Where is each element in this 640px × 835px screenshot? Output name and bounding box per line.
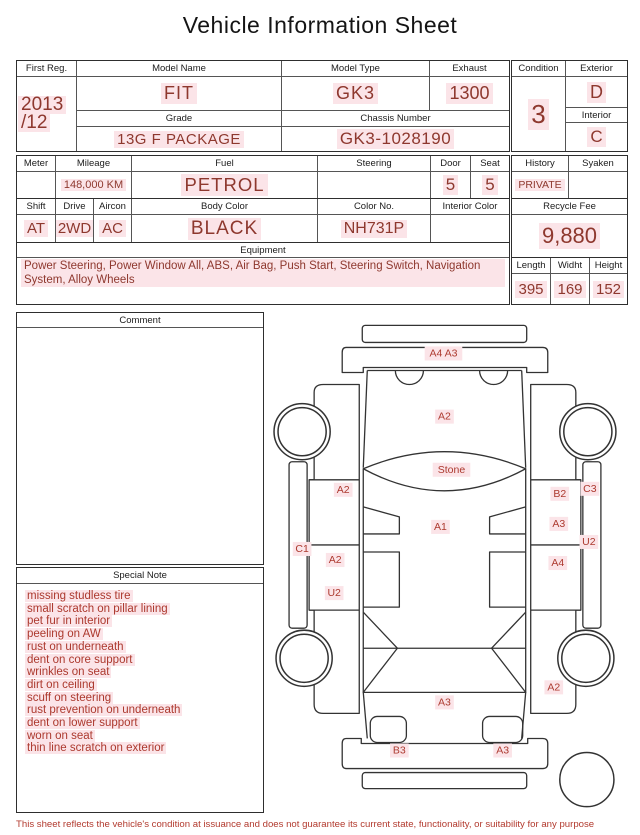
body-color-label: Body Color bbox=[132, 199, 318, 215]
diagram-damage-label: A2 bbox=[329, 554, 342, 566]
special-note-item: dent on core support bbox=[25, 654, 255, 667]
aircon-value: AC bbox=[99, 220, 126, 237]
diagram-damage-label: C3 bbox=[583, 483, 597, 495]
condition-grade-cell: 3 bbox=[512, 77, 566, 151]
diagram-damage-label: A3 bbox=[552, 518, 565, 530]
door-cell: 5 bbox=[431, 172, 471, 198]
special-note-item: small scratch on pillar lining bbox=[25, 603, 255, 616]
shift-label: Shift bbox=[17, 199, 56, 215]
page-title: Vehicle Information Sheet bbox=[0, 12, 640, 39]
model-type-cell: GK3 bbox=[282, 77, 430, 111]
recycle-fee-cell: 9,880 bbox=[512, 215, 627, 257]
diagram-damage-label: B3 bbox=[393, 745, 406, 757]
color-no-label: Color No. bbox=[318, 199, 431, 215]
condition-label: Condition bbox=[512, 61, 566, 77]
grade-value: 13G F PACKAGE bbox=[114, 131, 244, 148]
first-reg-label: First Reg. bbox=[17, 61, 77, 77]
meter-label: Meter bbox=[17, 156, 56, 172]
width-cell: 169 bbox=[551, 274, 590, 304]
equipment-value: Power Steering, Power Window All, ABS, A… bbox=[21, 259, 505, 287]
width-label: Widht bbox=[551, 258, 590, 274]
syaken-cell bbox=[569, 172, 627, 198]
color-no-value: NH731P bbox=[341, 220, 407, 238]
registration-table: First Reg. Model Name Model Type Exhaust… bbox=[16, 60, 510, 152]
exterior-grade-cell: D bbox=[566, 77, 627, 108]
body-color-value: BLACK bbox=[188, 218, 261, 240]
exterior-label: Exterior bbox=[566, 61, 627, 77]
length-value: 395 bbox=[515, 281, 546, 298]
height-cell: 152 bbox=[590, 274, 627, 304]
condition-grade-value: 3 bbox=[528, 99, 548, 130]
exhaust-value: 1300 bbox=[446, 83, 492, 104]
special-note-item: wrinkles on seat bbox=[25, 666, 255, 679]
diagram-damage-label: Stone bbox=[438, 464, 466, 476]
exhaust-label: Exhaust bbox=[430, 61, 509, 77]
condition-table: Condition Exterior 3 D Interior C bbox=[511, 60, 628, 152]
drive-value: 2WD bbox=[56, 220, 94, 237]
grade-label: Grade bbox=[77, 111, 282, 127]
spare-tire-icon bbox=[560, 753, 614, 807]
history-cell: PRIVATE bbox=[512, 172, 569, 198]
height-label: Height bbox=[590, 258, 627, 274]
mileage-label: Mileage bbox=[56, 156, 132, 172]
drive-label: Drive bbox=[56, 199, 94, 215]
seat-cell: 5 bbox=[471, 172, 509, 198]
car-diagram: A4 A3A2StoneA2B2C3A1A3C1U2A2A4U2A2A3B3A3 bbox=[264, 304, 640, 816]
door-label: Door bbox=[431, 156, 471, 172]
interior-label: Interior bbox=[566, 108, 627, 123]
interior-grade-cell: C bbox=[566, 123, 627, 151]
special-note-item: rust prevention on underneath bbox=[25, 704, 255, 717]
seat-value: 5 bbox=[482, 175, 497, 195]
color-no-cell: NH731P bbox=[318, 215, 431, 242]
model-name-value: FIT bbox=[161, 83, 197, 104]
diagram-damage-label: U2 bbox=[582, 536, 596, 548]
comment-body bbox=[17, 328, 263, 564]
spec-table-2: Shift Drive Aircon Body Color Color No. … bbox=[16, 199, 510, 243]
model-name-cell: FIT bbox=[77, 77, 282, 111]
recycle-fee-table: Recycle Fee 9,880 bbox=[511, 199, 628, 258]
length-label: Length bbox=[512, 258, 551, 274]
footer-disclaimer: This sheet reflects the vehicle's condit… bbox=[16, 819, 628, 830]
special-note-item: rust on underneath bbox=[25, 641, 255, 654]
chassis-number-label: Chassis Number bbox=[282, 111, 509, 127]
shift-value: AT bbox=[24, 220, 48, 237]
diagram-damage-label: A3 bbox=[438, 696, 451, 708]
equipment-label: Equipment bbox=[17, 243, 509, 258]
door-value: 5 bbox=[443, 175, 458, 195]
model-type-label: Model Type bbox=[282, 61, 430, 77]
body-color-cell: BLACK bbox=[132, 215, 318, 242]
recycle-fee-label: Recycle Fee bbox=[512, 199, 627, 215]
recycle-fee-value: 9,880 bbox=[539, 223, 600, 249]
diagram-damage-label: A3 bbox=[496, 745, 509, 757]
model-name-label: Model Name bbox=[77, 61, 282, 77]
special-note-item: dent on lower support bbox=[25, 717, 255, 730]
special-note-label: Special Note bbox=[17, 568, 263, 584]
diagram-damage-label: C1 bbox=[295, 543, 309, 555]
first-reg-cell: 2013 /12 bbox=[17, 77, 77, 151]
mileage-value: 148,000 KM bbox=[61, 179, 126, 191]
spec-table-1: Meter Mileage Fuel Steering Door Seat 14… bbox=[16, 155, 510, 199]
special-note-box: Special Note missing studless tire small… bbox=[16, 567, 264, 813]
first-reg-month: /12 bbox=[18, 114, 50, 132]
length-cell: 395 bbox=[512, 274, 551, 304]
fuel-label: Fuel bbox=[132, 156, 318, 172]
comment-box: Comment bbox=[16, 312, 264, 565]
shift-cell: AT bbox=[17, 215, 56, 242]
grade-cell: 13G F PACKAGE bbox=[77, 127, 282, 151]
width-value: 169 bbox=[554, 281, 585, 298]
special-note-item: scuff on steering bbox=[25, 692, 255, 705]
mileage-cell: 148,000 KM bbox=[56, 172, 132, 198]
special-note-item: thin line scratch on exterior bbox=[25, 742, 255, 755]
syaken-label: Syaken bbox=[569, 156, 627, 172]
aircon-cell: AC bbox=[94, 215, 132, 242]
special-note-item: peeling on AW bbox=[25, 628, 255, 641]
model-type-value: GK3 bbox=[333, 83, 378, 104]
special-note-item: dirt on ceiling bbox=[25, 679, 255, 692]
diagram-damage-label: A2 bbox=[337, 484, 350, 496]
fuel-value: PETROL bbox=[181, 174, 267, 196]
interior-color-label: Interior Color bbox=[431, 199, 509, 215]
history-table: History Syaken PRIVATE bbox=[511, 155, 628, 199]
interior-grade-value: C bbox=[587, 127, 605, 147]
history-label: History bbox=[512, 156, 569, 172]
diagram-damage-label: U2 bbox=[327, 587, 341, 599]
fuel-cell: PETROL bbox=[132, 172, 318, 198]
chassis-number-cell: GK3-1028190 bbox=[282, 127, 509, 151]
diagram-damage-label: A4 A3 bbox=[429, 347, 457, 359]
equipment-table: Equipment Power Steering, Power Window A… bbox=[16, 243, 510, 305]
history-value: PRIVATE bbox=[515, 179, 564, 191]
special-note-item: pet fur in interior bbox=[25, 615, 255, 628]
aircon-label: Aircon bbox=[94, 199, 132, 215]
comment-label: Comment bbox=[17, 313, 263, 328]
meter-cell bbox=[17, 172, 56, 198]
exterior-grade-value: D bbox=[587, 82, 606, 103]
diagram-damage-label: A2 bbox=[547, 681, 560, 693]
exhaust-cell: 1300 bbox=[430, 77, 509, 111]
special-note-item: missing studless tire bbox=[25, 590, 255, 603]
diagram-damage-label: A4 bbox=[551, 557, 564, 569]
special-note-list: missing studless tire small scratch on p… bbox=[17, 584, 263, 812]
interior-color-cell bbox=[431, 215, 509, 242]
steering-cell bbox=[318, 172, 431, 198]
diagram-damage-label: A1 bbox=[434, 521, 447, 533]
drive-cell: 2WD bbox=[56, 215, 94, 242]
special-note-item: worn on seat bbox=[25, 730, 255, 743]
chassis-number-value: GK3-1028190 bbox=[337, 129, 454, 149]
seat-label: Seat bbox=[471, 156, 509, 172]
diagram-labels: A4 A3A2StoneA2B2C3A1A3C1U2A2A4U2A2A3B3A3 bbox=[293, 346, 599, 757]
diagram-damage-label: B2 bbox=[553, 488, 566, 500]
diagram-damage-label: A2 bbox=[438, 411, 451, 423]
dimensions-table: Length Widht Height 395 169 152 bbox=[511, 258, 628, 305]
steering-label: Steering bbox=[318, 156, 431, 172]
height-value: 152 bbox=[593, 281, 624, 298]
equipment-cell: Power Steering, Power Window All, ABS, A… bbox=[17, 258, 509, 304]
